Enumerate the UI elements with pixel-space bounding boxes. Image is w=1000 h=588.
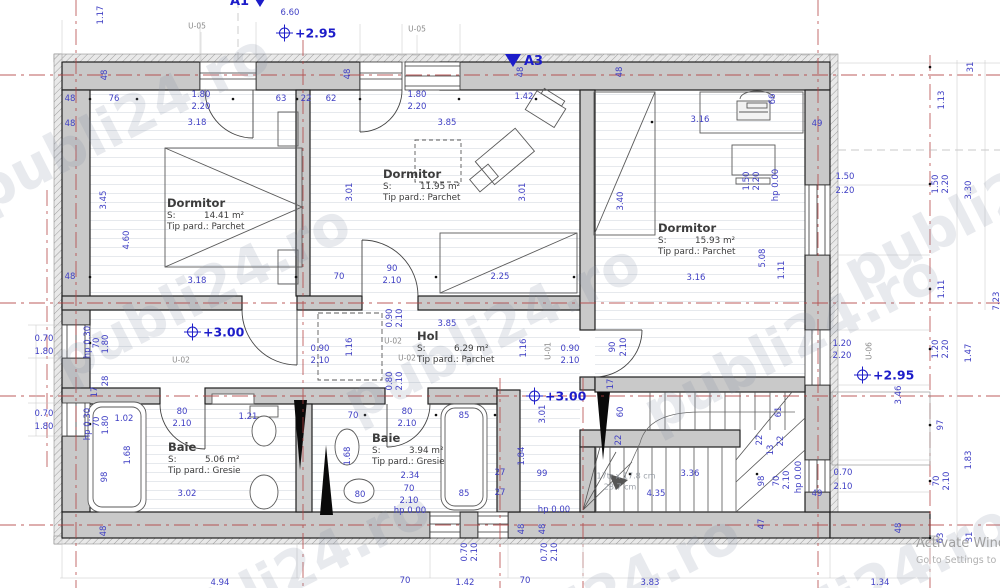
bathtub-1 — [88, 402, 146, 512]
floorplan-drawing — [0, 0, 1000, 588]
bathtub-2 — [441, 404, 487, 510]
laptop — [737, 101, 770, 120]
terrace-outline — [832, 392, 930, 465]
activate-windows-text: Activate Wind — [916, 536, 1000, 551]
sink-1 — [250, 475, 278, 509]
toilet-1 — [252, 416, 276, 446]
toilet-2 — [344, 479, 374, 503]
floorplan-canvas: publi24.ropubli24.ropubli24.ropubli24.ro… — [0, 0, 1000, 588]
activate-windows-subtext: Go to Settings to — [916, 555, 996, 566]
sink-2 — [335, 429, 359, 465]
toilet-1-tank — [250, 406, 278, 417]
towel-rail — [212, 394, 254, 404]
stairs — [583, 392, 805, 512]
